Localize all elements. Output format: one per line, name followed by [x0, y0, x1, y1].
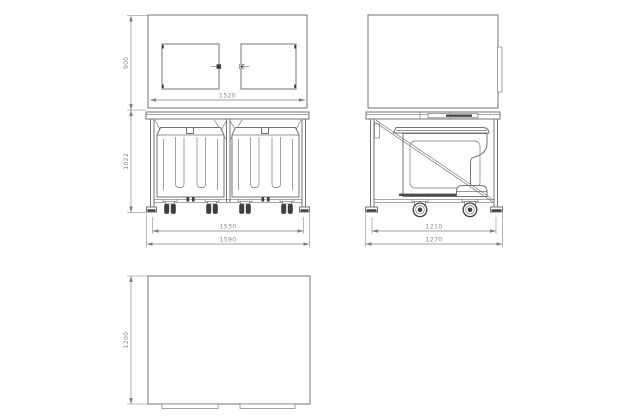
cabinet-door-left: [162, 44, 219, 89]
sheet-background: [0, 0, 640, 420]
dim-track-width: 1530: [220, 224, 237, 231]
foot-side-right-pad: [492, 209, 502, 211]
drawing-sheet: 1520 900 1022 1530 1590: [0, 0, 640, 420]
plan-tab-left: [162, 404, 218, 409]
foot-right-pad: [301, 209, 309, 211]
swivel-caster-icon: [462, 199, 478, 216]
dim-plan-depth: 1200: [123, 332, 130, 349]
dim-cabinet-height: 900: [123, 56, 130, 69]
plan-outline: [148, 276, 310, 404]
dim-overall-width: 1590: [220, 237, 237, 244]
foot-left-pad: [148, 209, 156, 211]
door-latch-right-icon: [241, 65, 243, 67]
cabinet-door-right: [241, 44, 296, 89]
corner-bracket: [375, 124, 380, 138]
technical-drawing-svg: 1520 900 1022 1530 1590: [0, 0, 640, 420]
frame-top-rail: [146, 112, 309, 119]
dim-frame-height: 1022: [123, 153, 130, 170]
dim-cabinet-width: 1520: [219, 93, 236, 100]
swivel-caster-icon: [412, 199, 428, 216]
foot-side-left-pad: [367, 209, 377, 211]
dim-frame-depth: 1210: [426, 224, 443, 231]
front-view: 1520 900 1022 1530 1590: [123, 15, 310, 247]
lid-handle-grip-icon: [446, 115, 472, 117]
door-latch-left-icon: [217, 64, 222, 69]
dim-overall-depth: 1270: [426, 237, 443, 244]
cabinet-side-outline: [368, 15, 498, 108]
plan-view: 1200: [123, 276, 310, 409]
hinge-strip: [498, 47, 503, 92]
plan-tab-right: [240, 404, 295, 409]
